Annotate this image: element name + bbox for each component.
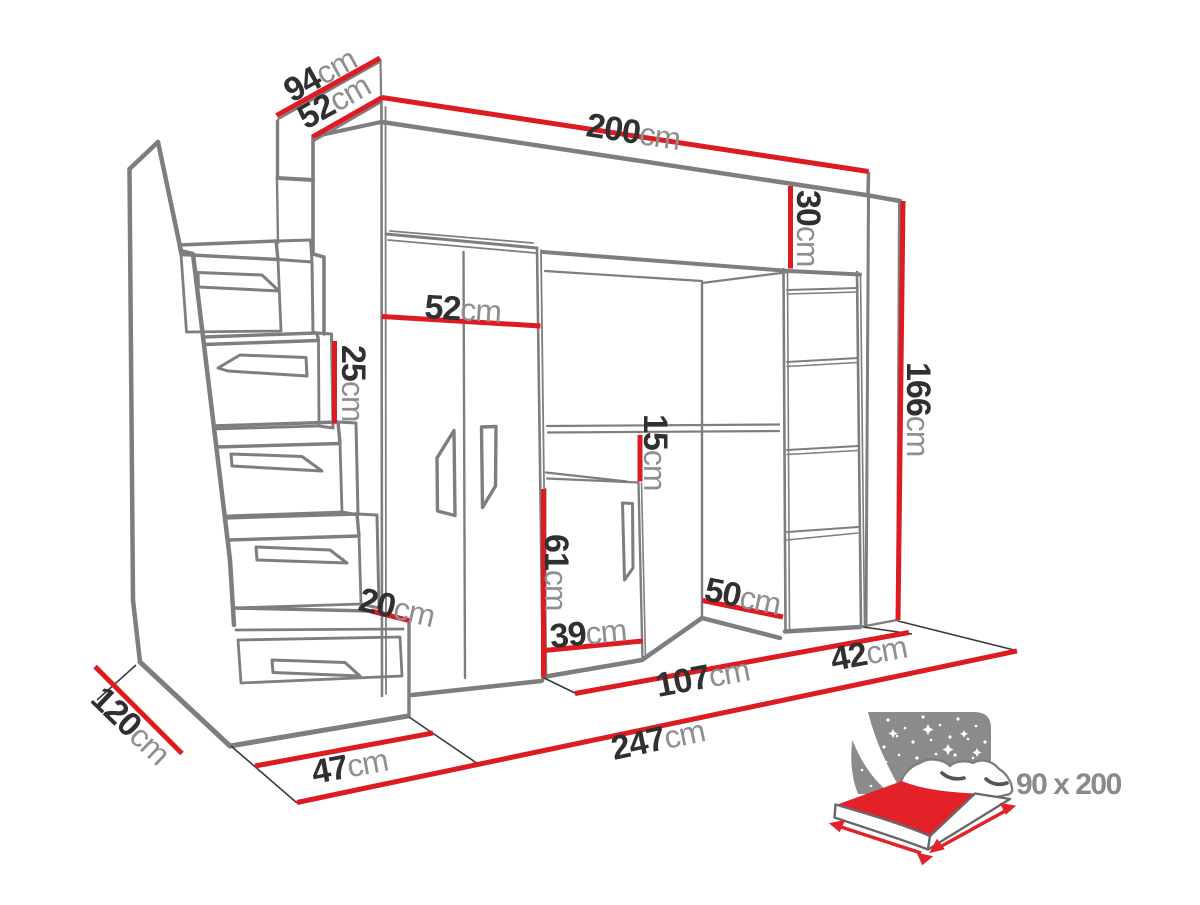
svg-text:25cm: 25cm xyxy=(334,345,372,421)
svg-text:52cm: 52cm xyxy=(424,288,503,331)
svg-text:166cm: 166cm xyxy=(899,362,937,456)
svg-text:61cm: 61cm xyxy=(537,534,575,610)
svg-text:90 x 200: 90 x 200 xyxy=(1016,768,1122,801)
svg-text:30cm: 30cm xyxy=(789,190,827,266)
svg-text:15cm: 15cm xyxy=(636,414,674,490)
